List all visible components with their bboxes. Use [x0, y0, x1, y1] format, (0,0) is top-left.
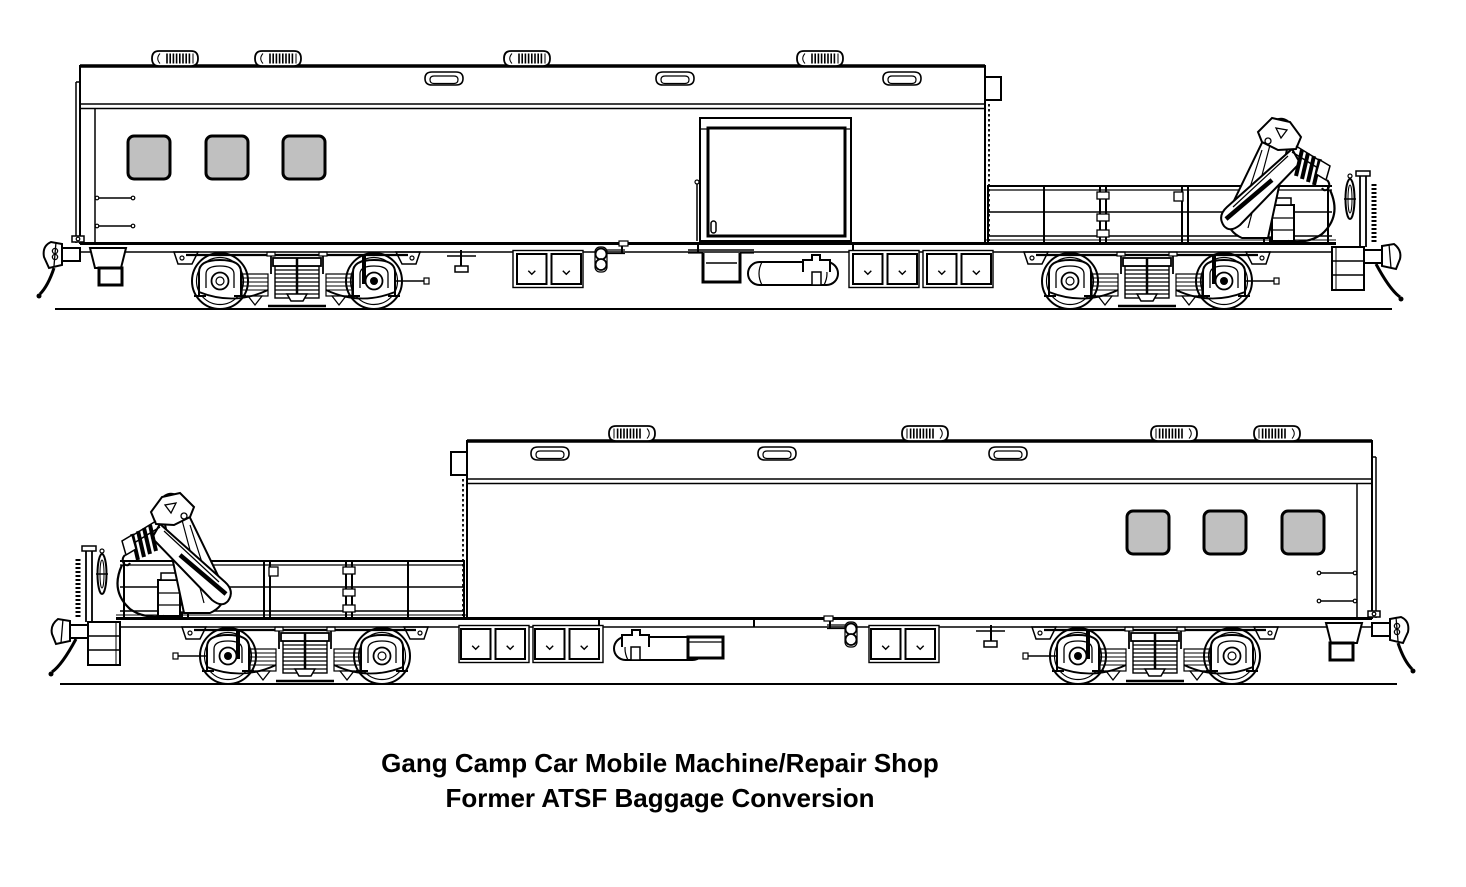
caption-line-2: Former ATSF Baggage Conversion [0, 781, 1320, 816]
door-handle [711, 221, 716, 233]
drawing-page: Gang Camp Car Mobile Machine/Repair Shop… [0, 0, 1466, 887]
sliding-door [688, 118, 851, 282]
side-view-b [49, 426, 1416, 684]
drawing-caption: Gang Camp Car Mobile Machine/Repair Shop… [0, 746, 1320, 816]
side-view-a [37, 51, 1404, 309]
caption-line-1: Gang Camp Car Mobile Machine/Repair Shop [0, 746, 1320, 781]
equipment-box [688, 637, 723, 658]
door-step-well [688, 250, 754, 282]
